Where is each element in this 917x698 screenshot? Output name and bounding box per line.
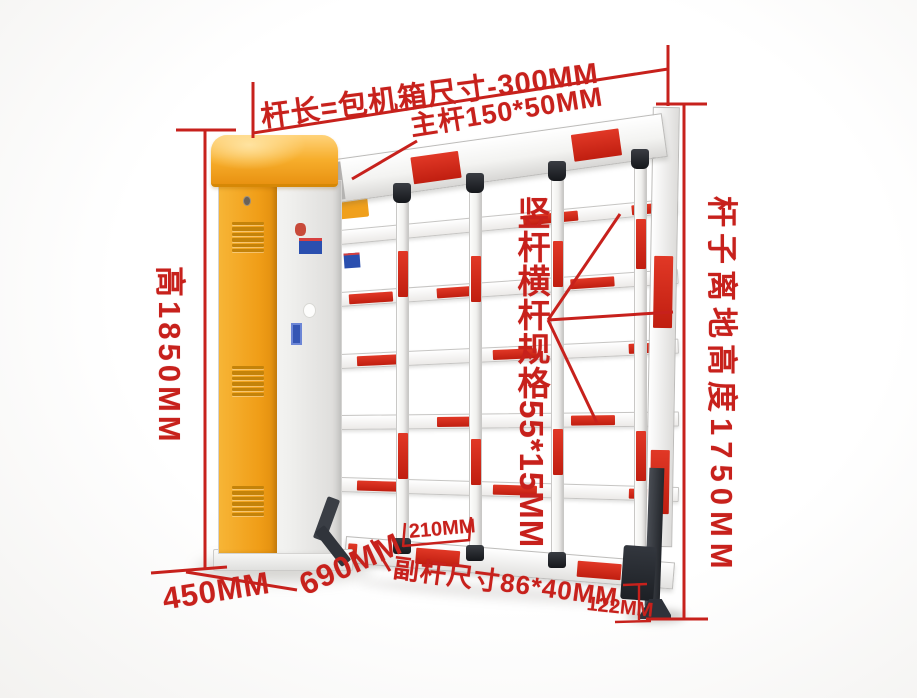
barrier-gate-spec-image: 杆长=包机箱尺寸-300MM 主杆150*50MM 高1850MM 杆子离地高度…	[0, 0, 917, 698]
mount-clip	[548, 161, 566, 181]
mount-clip	[466, 173, 484, 193]
mount-clip	[393, 183, 411, 203]
mount-clip	[548, 552, 566, 568]
vent-slat	[232, 371, 264, 374]
vent-group	[232, 222, 264, 254]
dim-label-cabinet-height: 高1850MM	[150, 266, 195, 446]
vent-slat	[232, 508, 264, 511]
vent-group	[232, 366, 264, 398]
vent-slat	[232, 238, 264, 241]
vent-slat	[232, 222, 264, 225]
support-leg-clamp	[620, 545, 657, 601]
vent-slat	[232, 249, 264, 252]
vent-slat	[232, 366, 264, 369]
sticker	[295, 223, 306, 236]
mount-clip	[631, 149, 649, 169]
vent-group	[232, 486, 264, 518]
vent-slat	[232, 233, 264, 236]
sticker	[343, 252, 360, 268]
vent-slat	[232, 382, 264, 385]
vent-slat	[232, 513, 264, 516]
vent-slat	[232, 491, 264, 494]
vent-slat	[232, 486, 264, 489]
dim-label-ground-clearance: 杆子离地高度1750MM	[702, 196, 747, 575]
vent-slat	[232, 502, 264, 505]
vent-slat	[232, 227, 264, 230]
vent-slat	[232, 377, 264, 380]
cabinet-cap	[211, 135, 338, 187]
keyhole	[243, 196, 251, 206]
sticker	[299, 238, 322, 254]
vent-slat	[232, 393, 264, 396]
dim-label-grid-spec: 竖杆横杆规格55*15MM	[507, 196, 555, 548]
sticker	[291, 323, 302, 345]
lock-cover	[303, 303, 316, 318]
vent-slat	[232, 244, 264, 247]
vent-slat	[232, 388, 264, 391]
vent-slat	[232, 497, 264, 500]
